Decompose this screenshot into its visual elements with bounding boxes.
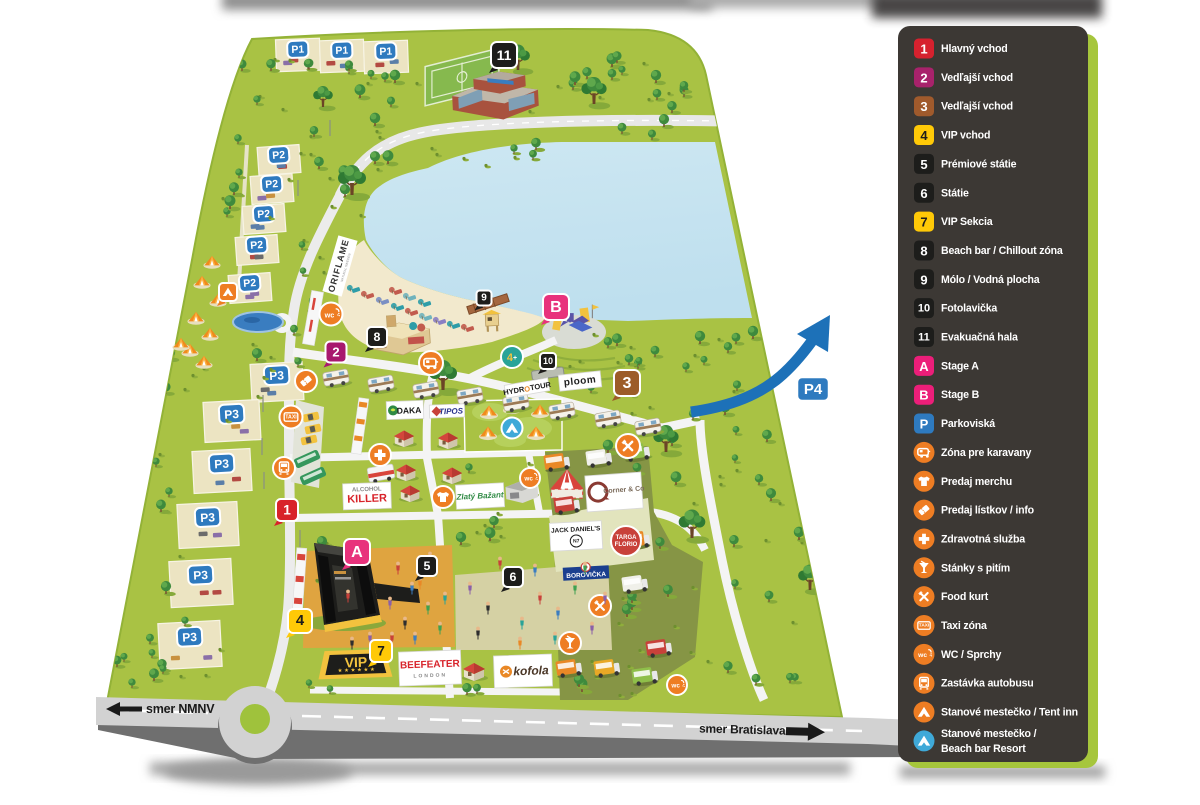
svg-text:Stánky s pitím: Stánky s pitím xyxy=(941,562,1010,574)
svg-text:Stanové mestečko / Tent inn: Stanové mestečko / Tent inn xyxy=(941,707,1078,719)
svg-text:Stage B: Stage B xyxy=(941,389,980,401)
svg-text:P2: P2 xyxy=(250,239,264,252)
svg-text:8: 8 xyxy=(920,243,927,258)
svg-text:Beach bar / Chillout zóna: Beach bar / Chillout zóna xyxy=(941,245,1063,257)
svg-text:P2: P2 xyxy=(257,208,271,221)
svg-text:1: 1 xyxy=(920,42,927,57)
svg-text:FLORIO: FLORIO xyxy=(615,542,638,548)
svg-text:P: P xyxy=(920,417,929,432)
svg-text:B: B xyxy=(550,298,562,316)
svg-text:smer Bratislava: smer Bratislava xyxy=(699,721,786,737)
svg-text:2: 2 xyxy=(332,345,339,360)
svg-text:10: 10 xyxy=(543,356,553,366)
svg-text:11: 11 xyxy=(918,332,930,344)
svg-text:kofola: kofola xyxy=(513,663,549,678)
svg-text:wc: wc xyxy=(523,475,533,482)
svg-text:4: 4 xyxy=(296,613,305,629)
svg-text:Zóna pre karavany: Zóna pre karavany xyxy=(941,447,1032,459)
svg-text:B: B xyxy=(919,388,928,403)
svg-text:BEEFEATER: BEEFEATER xyxy=(400,658,461,671)
svg-text:Stanové mestečko /: Stanové mestečko / xyxy=(941,728,1037,740)
svg-text:P4: P4 xyxy=(804,381,823,398)
svg-text:4: 4 xyxy=(920,128,928,143)
svg-text:9: 9 xyxy=(920,272,927,287)
svg-text:wc: wc xyxy=(670,682,680,689)
svg-text:TARGA: TARGA xyxy=(616,535,638,541)
svg-text:KILLER: KILLER xyxy=(347,492,387,505)
svg-text:Vedľajší vchod: Vedľajší vchod xyxy=(941,72,1013,84)
svg-text:P2: P2 xyxy=(265,178,279,191)
svg-text:Zastávka autobusu: Zastávka autobusu xyxy=(941,678,1034,690)
svg-text:TAXI: TAXI xyxy=(285,415,297,421)
svg-text:Mólo / Vodná plocha: Mólo / Vodná plocha xyxy=(941,274,1040,286)
svg-text:LONDON: LONDON xyxy=(413,672,447,679)
svg-text:P1: P1 xyxy=(335,45,348,57)
svg-text:10: 10 xyxy=(918,303,930,315)
svg-text:Evakuačná hala: Evakuačná hala xyxy=(941,332,1018,344)
svg-text:Státie: Státie xyxy=(941,187,969,199)
svg-text:Zdravotná služba: Zdravotná služba xyxy=(941,533,1025,545)
svg-text:Prémiové státie: Prémiové státie xyxy=(941,158,1017,170)
svg-text:P3: P3 xyxy=(182,630,198,645)
svg-text:5: 5 xyxy=(920,157,927,172)
svg-text:3: 3 xyxy=(920,99,927,114)
svg-text:VIP Sekcia: VIP Sekcia xyxy=(941,216,993,228)
svg-text:DAKA: DAKA xyxy=(397,405,422,416)
svg-text:wc: wc xyxy=(917,652,927,659)
svg-text:7: 7 xyxy=(377,644,385,659)
svg-text:TIPOS: TIPOS xyxy=(439,406,464,416)
svg-text:★ ★ ★ ★ ★ ★: ★ ★ ★ ★ ★ ★ xyxy=(337,666,375,674)
svg-text:6: 6 xyxy=(510,570,517,584)
svg-text:7: 7 xyxy=(920,215,927,230)
svg-text:WC / Sprchy: WC / Sprchy xyxy=(941,649,1002,661)
svg-text:2: 2 xyxy=(920,70,927,85)
svg-text:A: A xyxy=(919,359,929,374)
svg-text:P2: P2 xyxy=(272,149,286,162)
svg-text:Food kurt: Food kurt xyxy=(941,591,989,603)
svg-text:9: 9 xyxy=(481,293,487,304)
svg-text:N7: N7 xyxy=(573,538,580,544)
svg-text:6: 6 xyxy=(920,186,927,201)
svg-text:TAXI: TAXI xyxy=(919,622,929,628)
svg-text:VIP vchod: VIP vchod xyxy=(941,130,990,142)
svg-text:Taxi zóna: Taxi zóna xyxy=(941,620,987,632)
svg-text:Beach bar Resort: Beach bar Resort xyxy=(941,743,1026,755)
svg-text:P1: P1 xyxy=(379,46,392,58)
svg-text:Predaj lístkov / info: Predaj lístkov / info xyxy=(941,505,1035,517)
svg-text:wc: wc xyxy=(324,311,335,320)
svg-text:P3: P3 xyxy=(200,510,216,525)
svg-text:Stage A: Stage A xyxy=(941,360,979,372)
svg-text:P3: P3 xyxy=(193,568,209,583)
svg-text:1: 1 xyxy=(283,503,291,518)
svg-text:P1: P1 xyxy=(291,44,304,56)
svg-text:smer NMNV: smer NMNV xyxy=(146,702,215,716)
svg-text:5: 5 xyxy=(424,559,431,573)
svg-text:11: 11 xyxy=(497,47,512,63)
svg-text:Fotolavička: Fotolavička xyxy=(941,303,997,315)
svg-text:8: 8 xyxy=(374,330,381,344)
svg-text:P2: P2 xyxy=(243,277,257,290)
svg-text:A: A xyxy=(351,543,363,561)
svg-text:Vedľajší vchod: Vedľajší vchod xyxy=(941,101,1013,113)
svg-text:Hlavný vchod: Hlavný vchod xyxy=(941,43,1007,55)
svg-text:P3: P3 xyxy=(214,457,230,472)
svg-text:Predaj merchu: Predaj merchu xyxy=(941,476,1012,488)
svg-text:Parkoviská: Parkoviská xyxy=(941,418,995,430)
svg-text:3: 3 xyxy=(623,374,632,392)
